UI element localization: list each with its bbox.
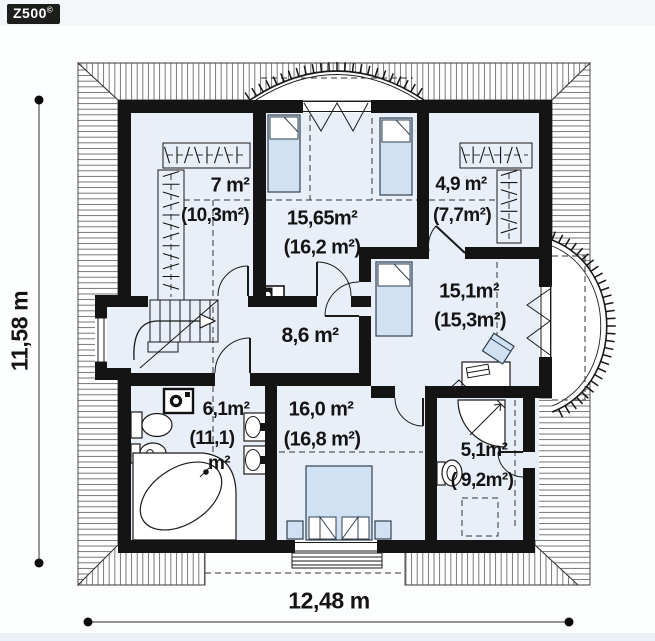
room-area-unit-bathroom-left: m²	[208, 453, 230, 475]
room-area-wardrobe-left: 7 m²	[211, 175, 250, 198]
single-bed	[380, 118, 412, 195]
room-area-gross-bathroom-left: (11,1)	[190, 428, 235, 450]
room-area-gross-room-right: (15,3m²)	[434, 310, 506, 333]
room-area-gross-bathroom-right: ( 9,2m²)	[451, 470, 514, 492]
dimension-line-horizontal	[84, 618, 574, 627]
room-area-bedroom-bottom: 16,0 m²	[289, 399, 354, 422]
room-area-hall: 8,6 m²	[281, 324, 338, 348]
room-area-room-right: 15,1m²	[439, 281, 499, 304]
washing-machine	[164, 389, 193, 413]
room-area-gross-bedroom-bottom: (16,8 m²)	[284, 429, 361, 452]
room-area-gross-wardrobe-left: (10,3m²)	[181, 205, 249, 227]
toilet	[131, 412, 172, 438]
room-area-wardrobe-right: 4,9 m²	[435, 174, 486, 196]
single-bed	[268, 115, 300, 192]
room-area-bathroom-left: 6,1m²	[203, 399, 250, 421]
balcony-door-threshold	[295, 543, 377, 552]
floor-plan-drawing	[0, 0, 655, 641]
dimension-line-vertical	[35, 96, 44, 568]
balcony	[292, 553, 382, 568]
copyright-mark: ©	[47, 5, 53, 14]
single-bed	[376, 262, 412, 336]
page-top-strip	[0, 0, 655, 26]
room-area-bathroom-right: 5,1m²	[461, 440, 508, 462]
room-area-gross-bedroom-top: (16,2 m²)	[284, 237, 361, 260]
room-area-gross-wardrobe-right: (7,7m²)	[433, 205, 491, 227]
nightstand	[287, 521, 303, 539]
sink	[244, 446, 266, 474]
z500-logo-text: Z500	[13, 5, 47, 21]
dimension-label-horizontal: 12,48 m	[288, 588, 370, 615]
nightstand	[375, 521, 391, 539]
dimension-label-vertical: 11,58 m	[7, 291, 34, 371]
room-area-bedroom-top: 15,65m²	[287, 208, 357, 231]
page-bottom-strip	[0, 633, 655, 641]
z500-logo: Z500©	[7, 4, 60, 24]
floor-plan-page: Z500©	[0, 0, 655, 641]
